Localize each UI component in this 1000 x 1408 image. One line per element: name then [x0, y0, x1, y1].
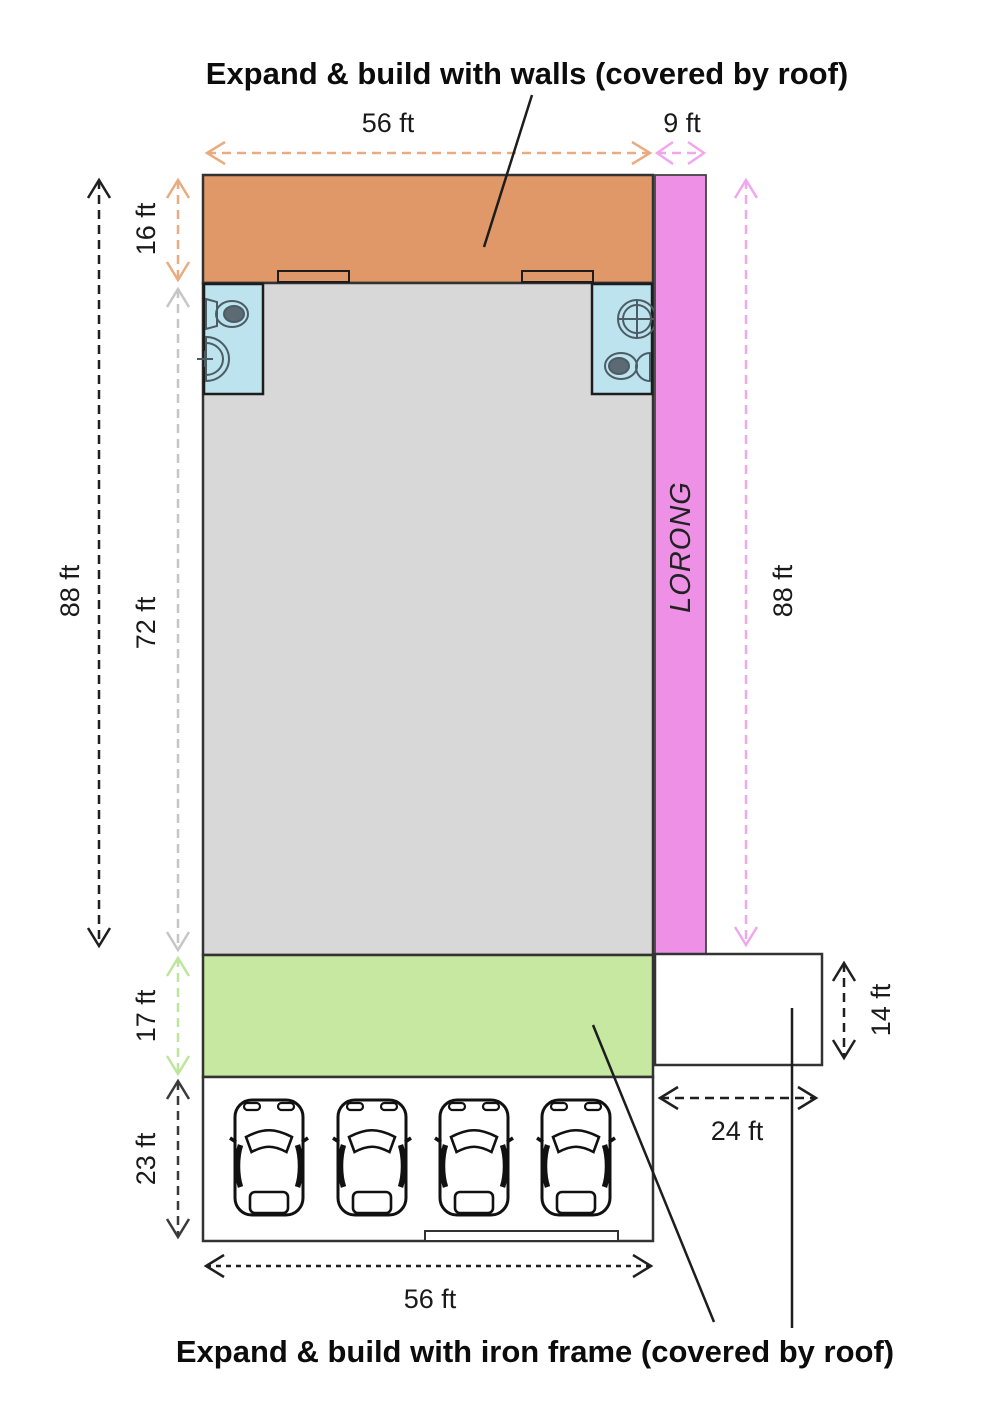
floor-plan-svg: Expand & build with walls (covered by ro… — [0, 0, 1000, 1408]
entry-step-right — [522, 271, 593, 282]
dim-label-bottom-width: 56 ft — [404, 1284, 457, 1314]
dim-label-annex-width: 24 ft — [711, 1116, 764, 1146]
dim-arrow-top-width — [207, 142, 650, 164]
dim-arrow-annex-height — [833, 963, 855, 1058]
zone-main-building — [203, 283, 653, 955]
dim-label-top-width: 56 ft — [362, 108, 415, 138]
driveway-edge-marker — [425, 1231, 618, 1241]
car-icon — [435, 1100, 513, 1215]
car-icon — [230, 1100, 308, 1215]
dim-label-walls-height: 16 ft — [131, 202, 161, 255]
floor-plan-page: Expand & build with walls (covered by ro… — [0, 0, 1000, 1408]
dim-label-green-height: 17 ft — [131, 989, 161, 1042]
dim-arrow-total-height-right — [735, 180, 757, 945]
dim-arrow-lorong-width — [657, 142, 704, 164]
zone-walls-extension — [203, 175, 653, 283]
dim-arrow-bottom-width — [206, 1255, 651, 1277]
dim-label-parking-depth: 23 ft — [131, 1132, 161, 1185]
car-icon — [333, 1100, 411, 1215]
dim-arrow-green-height — [167, 958, 189, 1074]
dim-arrow-parking-depth — [167, 1081, 189, 1237]
entry-step-left — [278, 271, 349, 282]
dim-label-lorong-width: 9 ft — [663, 108, 701, 138]
dim-label-annex-height: 14 ft — [866, 983, 896, 1036]
road-name-label: LORONG — [665, 481, 697, 613]
side-annex-box — [655, 954, 822, 1065]
dim-label-main-height: 72 ft — [131, 596, 161, 649]
dim-arrow-total-height-left — [88, 180, 110, 946]
dim-arrow-walls-height — [167, 180, 189, 280]
dim-label-total-height-left: 88 ft — [55, 564, 85, 617]
dim-arrow-main-height — [167, 289, 189, 950]
title-bottom: Expand & build with iron frame (covered … — [176, 1334, 894, 1369]
zone-iron-frame-extension — [203, 955, 653, 1077]
title-top: Expand & build with walls (covered by ro… — [206, 56, 848, 91]
dim-label-total-height-right: 88 ft — [768, 564, 798, 617]
car-icon — [537, 1100, 615, 1215]
